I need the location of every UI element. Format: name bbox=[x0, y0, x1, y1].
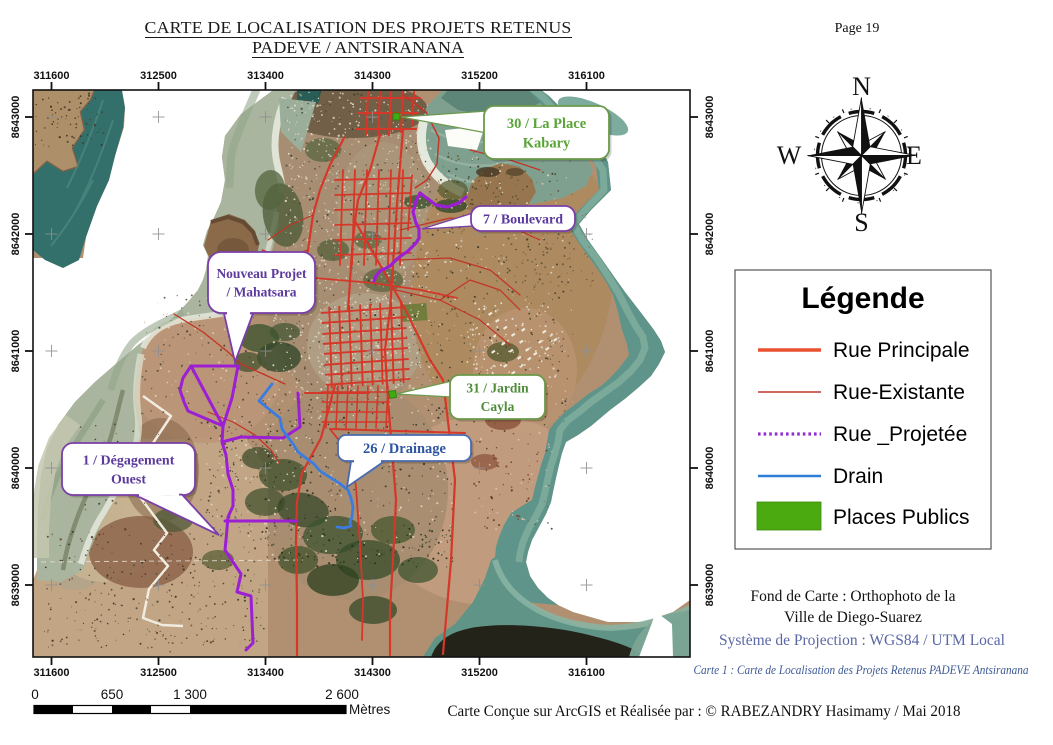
svg-text:311600: 311600 bbox=[33, 667, 69, 679]
svg-text:8643000: 8643000 bbox=[704, 96, 716, 139]
svg-text:8642000: 8642000 bbox=[704, 213, 716, 256]
svg-text:316100: 316100 bbox=[568, 70, 605, 82]
svg-text:S: S bbox=[854, 208, 868, 237]
svg-text:Carte 1 : Carte de Localisatio: Carte 1 : Carte de Localisation des Proj… bbox=[694, 662, 1029, 677]
svg-text:312500: 312500 bbox=[140, 70, 177, 82]
svg-text:7 / Boulevard: 7 / Boulevard bbox=[483, 212, 563, 227]
svg-text:8640000: 8640000 bbox=[704, 447, 716, 490]
svg-text:W: W bbox=[777, 141, 802, 170]
svg-text:8639000: 8639000 bbox=[704, 564, 716, 607]
svg-text:315200: 315200 bbox=[461, 667, 498, 679]
svg-text:8642000: 8642000 bbox=[10, 213, 22, 256]
svg-text:E: E bbox=[906, 141, 922, 170]
svg-text:312500: 312500 bbox=[140, 667, 177, 679]
svg-text:8641000: 8641000 bbox=[704, 330, 716, 373]
svg-text:Rue Principale: Rue Principale bbox=[833, 339, 970, 362]
svg-text:N: N bbox=[852, 72, 871, 101]
svg-text:0: 0 bbox=[31, 687, 39, 702]
svg-text:31 / Jardin: 31 / Jardin bbox=[466, 381, 529, 396]
svg-text:650: 650 bbox=[101, 687, 124, 702]
svg-text:8641000: 8641000 bbox=[10, 330, 22, 373]
svg-text:Fond de Carte : Orthophoto de: Fond de Carte : Orthophoto de la bbox=[751, 588, 956, 605]
svg-text:Système de Projection : WGS84: Système de Projection : WGS84 / UTM Loca… bbox=[719, 632, 1005, 649]
svg-text:1 300: 1 300 bbox=[173, 687, 207, 702]
svg-text:315200: 315200 bbox=[461, 70, 498, 82]
svg-text:Rue-Existante: Rue-Existante bbox=[833, 381, 965, 404]
svg-text:30 / La Place: 30 / La Place bbox=[507, 116, 587, 132]
svg-text:CARTE DE LOCALISATION DES PROJ: CARTE DE LOCALISATION DES PROJETS RETENU… bbox=[145, 18, 572, 37]
svg-text:1 / Dégagement: 1 / Dégagement bbox=[83, 453, 175, 468]
svg-text:8639000: 8639000 bbox=[10, 564, 22, 607]
svg-text:Drain: Drain bbox=[833, 465, 883, 488]
svg-text:Nouveau Projet: Nouveau Projet bbox=[216, 266, 307, 281]
svg-text:Ville de Diego-Suarez: Ville de Diego-Suarez bbox=[784, 609, 922, 626]
svg-text:Page 19: Page 19 bbox=[835, 21, 880, 36]
svg-text:8643000: 8643000 bbox=[10, 96, 22, 139]
svg-text:313400: 313400 bbox=[247, 70, 284, 82]
svg-text:Rue _Projetée: Rue _Projetée bbox=[833, 423, 967, 446]
svg-text:Mètres: Mètres bbox=[349, 702, 391, 717]
svg-text:314300: 314300 bbox=[354, 667, 391, 679]
svg-text:313400: 313400 bbox=[247, 667, 284, 679]
svg-text:/ Mahatsara: / Mahatsara bbox=[225, 285, 296, 300]
svg-text:Carte Conçue sur ArcGIS et Réa: Carte Conçue sur ArcGIS et Réalisée par … bbox=[448, 703, 961, 720]
svg-text:Cayla: Cayla bbox=[481, 399, 515, 414]
svg-text:Ouest: Ouest bbox=[111, 472, 146, 487]
svg-text:Légende: Légende bbox=[801, 282, 924, 315]
svg-text:316100: 316100 bbox=[568, 667, 605, 679]
svg-text:PADEVE / ANTSIRANANA: PADEVE / ANTSIRANANA bbox=[252, 38, 465, 57]
svg-text:8640000: 8640000 bbox=[10, 447, 22, 490]
svg-text:314300: 314300 bbox=[354, 70, 391, 82]
svg-text:311600: 311600 bbox=[33, 70, 69, 82]
svg-text:26 / Drainage: 26 / Drainage bbox=[363, 441, 447, 457]
svg-text:Places Publics: Places Publics bbox=[833, 506, 970, 529]
svg-text:2 600: 2 600 bbox=[325, 687, 359, 702]
svg-text:Kabary: Kabary bbox=[523, 135, 571, 151]
